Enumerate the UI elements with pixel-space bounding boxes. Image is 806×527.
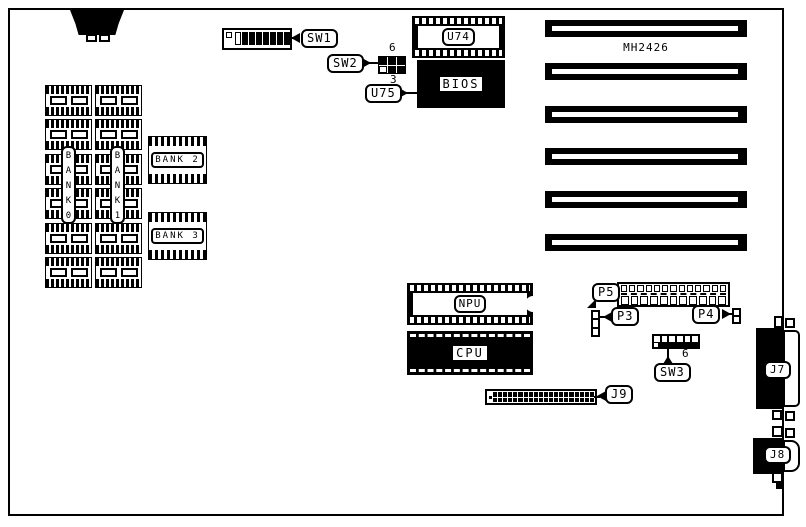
sw1-callout-arrow <box>291 33 300 43</box>
npu-pins <box>410 285 530 291</box>
bank0-label: B A N K 0 <box>61 146 76 224</box>
keyboard-connector <box>70 10 124 35</box>
j7-mount-tab <box>785 318 795 328</box>
p4-pins <box>734 310 739 322</box>
u74-pins <box>415 50 502 56</box>
keyboard-connector-tab <box>86 34 97 42</box>
pin-sq <box>569 398 573 403</box>
p5-cell <box>650 296 658 305</box>
bank2-label: BANK 2 <box>151 152 204 168</box>
pin-white <box>593 320 598 326</box>
bank3-chip: BANK 3 <box>148 212 207 260</box>
sw3-label: SW3 <box>654 363 691 382</box>
p5-tooth <box>662 285 668 292</box>
pin-sq <box>544 392 548 397</box>
j7-mount-tab <box>785 411 795 421</box>
p5-tooth <box>703 285 709 292</box>
p5-tooth <box>629 285 635 292</box>
pin-sq <box>508 398 512 403</box>
mem-chip <box>95 223 142 254</box>
pin-sq <box>529 398 533 403</box>
p5-tooth <box>670 285 676 292</box>
pin-sq <box>549 398 553 403</box>
bios-label: BIOS <box>440 77 483 91</box>
bank3-pins <box>149 213 206 222</box>
j9-label: J9 <box>605 385 633 404</box>
p5-tooth <box>695 285 701 292</box>
slot <box>545 20 747 37</box>
pin-sq <box>554 392 558 397</box>
p5-connector <box>617 282 730 307</box>
sw1-cell <box>263 32 269 45</box>
sw2-cell <box>388 57 396 65</box>
sw3-cell <box>669 336 675 342</box>
sw1-label: SW1 <box>301 29 338 48</box>
p5-tooth <box>679 285 685 292</box>
cpu-label: CPU <box>453 346 487 360</box>
pin-sq <box>559 398 563 403</box>
j7-mount-tab <box>772 410 782 420</box>
bank3-body: BANK 3 <box>149 222 206 250</box>
bank1-label: B A N K 1 <box>110 146 125 224</box>
pin-sq <box>539 392 543 397</box>
pin-sq <box>534 392 538 397</box>
pin-sq <box>524 398 528 403</box>
p4-label: P4 <box>692 305 720 324</box>
sw3-cell <box>677 336 683 342</box>
pin-sq <box>529 392 533 397</box>
p5-cell <box>679 296 687 305</box>
sw1-cell <box>270 32 276 45</box>
pin-sq <box>508 392 512 397</box>
pin-sq <box>575 392 579 397</box>
pin-sq <box>493 392 497 397</box>
sw3-dip-switch <box>652 334 700 349</box>
bank2-pins <box>149 137 206 146</box>
pin-sq <box>580 392 584 397</box>
sw3-cell <box>654 336 660 342</box>
p5-cell <box>709 296 717 305</box>
npu-chip: NPU <box>407 283 533 325</box>
sw1-cell <box>277 32 283 45</box>
pin-sq <box>590 398 594 403</box>
sw1-cell <box>235 32 241 45</box>
pin-sq <box>564 392 568 397</box>
motherboard-diagram: SW1 SW2 6 3 U75 U74 BIOS MH2426 B A N K … <box>0 0 806 527</box>
slot <box>545 148 747 165</box>
pin-white <box>593 312 598 318</box>
bank3-pins <box>149 250 206 259</box>
sw1-pin1-marker <box>226 32 232 38</box>
sw3-cell <box>662 336 668 342</box>
pin-sq <box>554 398 558 403</box>
j8-mount-tab <box>785 428 795 438</box>
pin-sq <box>564 398 568 403</box>
p5-tooth <box>712 285 718 292</box>
sw2-dip-switch <box>378 56 406 74</box>
pin-sq <box>518 392 522 397</box>
p5-tooth <box>646 285 652 292</box>
pin-sq <box>524 392 528 397</box>
p4-callout-line <box>728 313 733 315</box>
pin-sq <box>549 392 553 397</box>
mem-chip <box>45 85 92 116</box>
pin-sq <box>575 398 579 403</box>
u74-label: U74 <box>442 28 475 46</box>
sw1-switch-positions <box>235 32 290 46</box>
expansion-slots <box>545 20 747 251</box>
npu-body: NPU <box>413 293 527 315</box>
sw2-cell <box>388 66 396 74</box>
keyboard-connector-tab <box>99 34 110 42</box>
cpu-chip: CPU <box>407 331 533 375</box>
p5-tooth <box>621 285 627 292</box>
pin-sq <box>493 398 497 403</box>
p5-cell <box>660 296 668 305</box>
p5-cell <box>718 296 726 305</box>
j7-mount-tab <box>774 316 783 328</box>
sw1-cell <box>256 32 262 45</box>
sw1-cell <box>249 32 255 45</box>
sw3-cell <box>692 336 698 342</box>
pin-sq <box>498 392 502 397</box>
sw1-cell <box>242 32 248 45</box>
u74-pins <box>415 18 502 24</box>
sw2-label: SW2 <box>327 54 364 73</box>
sw2-pin-6: 6 <box>389 42 396 53</box>
pin-white <box>593 329 598 335</box>
j9-pins <box>493 392 594 402</box>
pin-sq <box>569 392 573 397</box>
p4-connector <box>732 308 741 324</box>
mem-chip <box>45 257 92 288</box>
p3-pins <box>593 312 598 335</box>
p5-cell <box>631 296 639 305</box>
u74-body: U74 <box>418 26 499 48</box>
pin-sq <box>503 392 507 397</box>
pin-white <box>734 310 739 315</box>
p3-connector <box>591 310 600 337</box>
sw2-cell <box>379 66 387 74</box>
slot <box>545 106 747 123</box>
p5-cell <box>699 296 707 305</box>
bank2-body: BANK 2 <box>149 146 206 174</box>
pin-sq <box>585 392 589 397</box>
pin-sq <box>544 398 548 403</box>
j8-mount-nub <box>776 482 784 489</box>
sw2-cell <box>397 66 405 74</box>
mem-chip <box>95 85 142 116</box>
u74-chip: U74 <box>412 16 505 58</box>
p5-cell <box>670 296 678 305</box>
bank2-chip: BANK 2 <box>148 136 207 184</box>
npu-label: NPU <box>454 295 487 313</box>
pin-sq <box>534 398 538 403</box>
slot <box>545 63 747 80</box>
pin-sq <box>498 398 502 403</box>
sw3-pin-6: 6 <box>682 348 689 359</box>
pin-sq <box>539 398 543 403</box>
pin-sq <box>585 398 589 403</box>
pin-sq <box>518 398 522 403</box>
p5-cell <box>640 296 648 305</box>
p5-tooth <box>654 285 660 292</box>
sw2-callout-line <box>369 62 378 64</box>
pin-white <box>734 317 739 322</box>
p5-tooth <box>687 285 693 292</box>
u75-callout-line <box>406 92 417 94</box>
j8-mount-tab <box>772 426 783 437</box>
p5-cell <box>689 296 697 305</box>
p5-label: P5 <box>592 283 620 302</box>
p5-top-row <box>619 284 728 292</box>
pin-sq <box>513 392 517 397</box>
sw3-cell <box>685 336 691 342</box>
npu-pins <box>410 317 530 323</box>
j9-connector <box>485 389 597 405</box>
pin-sq <box>559 392 563 397</box>
u75-label: U75 <box>365 84 402 103</box>
j7-label: J7 <box>764 361 791 379</box>
p5-tooth <box>720 285 726 292</box>
pin-sq <box>503 398 507 403</box>
p3-label: P3 <box>611 307 639 326</box>
p5-tooth <box>637 285 643 292</box>
sw2-cell <box>397 57 405 65</box>
mem-chip <box>95 257 142 288</box>
pin-sq <box>580 398 584 403</box>
bios-chip: BIOS <box>417 60 505 108</box>
slot <box>545 234 747 251</box>
p5-cell <box>621 296 629 305</box>
bank3-label: BANK 3 <box>151 228 204 244</box>
bank2-pins <box>149 174 206 183</box>
sw2-cell <box>379 57 387 65</box>
slot <box>545 191 747 208</box>
sw1-dip-switch <box>222 28 292 50</box>
board-model-label: MH2426 <box>545 41 747 54</box>
j8-label: J8 <box>764 446 791 464</box>
sw3-switch-positions <box>654 336 698 342</box>
mem-chip <box>45 223 92 254</box>
pin-sq <box>513 398 517 403</box>
